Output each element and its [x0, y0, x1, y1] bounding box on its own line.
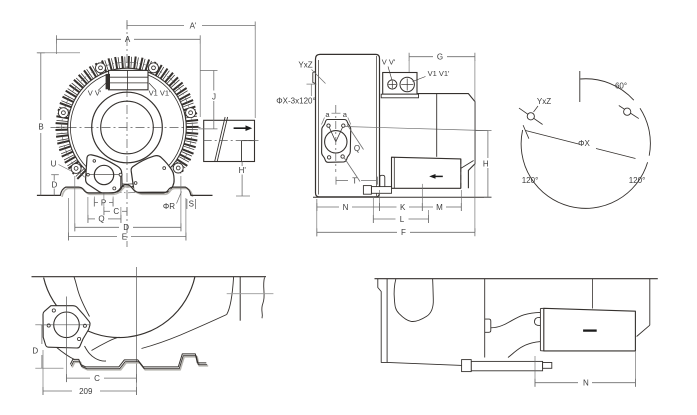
svg-text:M: M	[436, 203, 443, 212]
svg-text:E: E	[122, 232, 127, 241]
svg-text:S: S	[189, 200, 194, 209]
svg-text:120°: 120°	[522, 176, 539, 185]
svg-text:D: D	[52, 181, 58, 190]
svg-text:U: U	[51, 160, 57, 169]
svg-text:V1 V1': V1 V1'	[428, 69, 450, 78]
svg-text:F: F	[401, 228, 406, 237]
svg-text:G: G	[437, 52, 443, 61]
svg-text:J: J	[212, 92, 216, 101]
svg-text:209: 209	[79, 387, 93, 396]
svg-text:C: C	[94, 374, 100, 383]
svg-text:ΦX-3x120°: ΦX-3x120°	[276, 97, 315, 106]
svg-text:N: N	[583, 379, 589, 388]
svg-text:YxZ: YxZ	[298, 61, 312, 70]
svg-text:V1 V1': V1 V1'	[149, 89, 171, 98]
svg-text:N: N	[343, 203, 349, 212]
svg-text:120°: 120°	[629, 176, 646, 185]
svg-text:K: K	[400, 203, 406, 212]
svg-text:C: C	[113, 207, 119, 216]
svg-text:B: B	[38, 123, 43, 132]
svg-text:60°: 60°	[615, 82, 627, 91]
svg-text:Q: Q	[98, 215, 104, 224]
svg-text:Q: Q	[354, 144, 360, 153]
svg-text:A: A	[125, 35, 131, 44]
svg-text:H': H'	[239, 166, 247, 175]
svg-text:D: D	[32, 346, 38, 355]
svg-text:ΦR: ΦR	[163, 202, 175, 211]
svg-text:A': A'	[190, 21, 197, 30]
svg-text:V V': V V'	[88, 89, 102, 98]
svg-text:L: L	[400, 215, 405, 224]
svg-text:V V': V V'	[382, 58, 396, 67]
svg-text:YxZ: YxZ	[537, 97, 551, 106]
svg-text:D: D	[123, 223, 129, 232]
svg-text:H: H	[483, 160, 489, 169]
svg-text:T: T	[352, 176, 357, 185]
svg-text:ΦX: ΦX	[578, 139, 590, 148]
